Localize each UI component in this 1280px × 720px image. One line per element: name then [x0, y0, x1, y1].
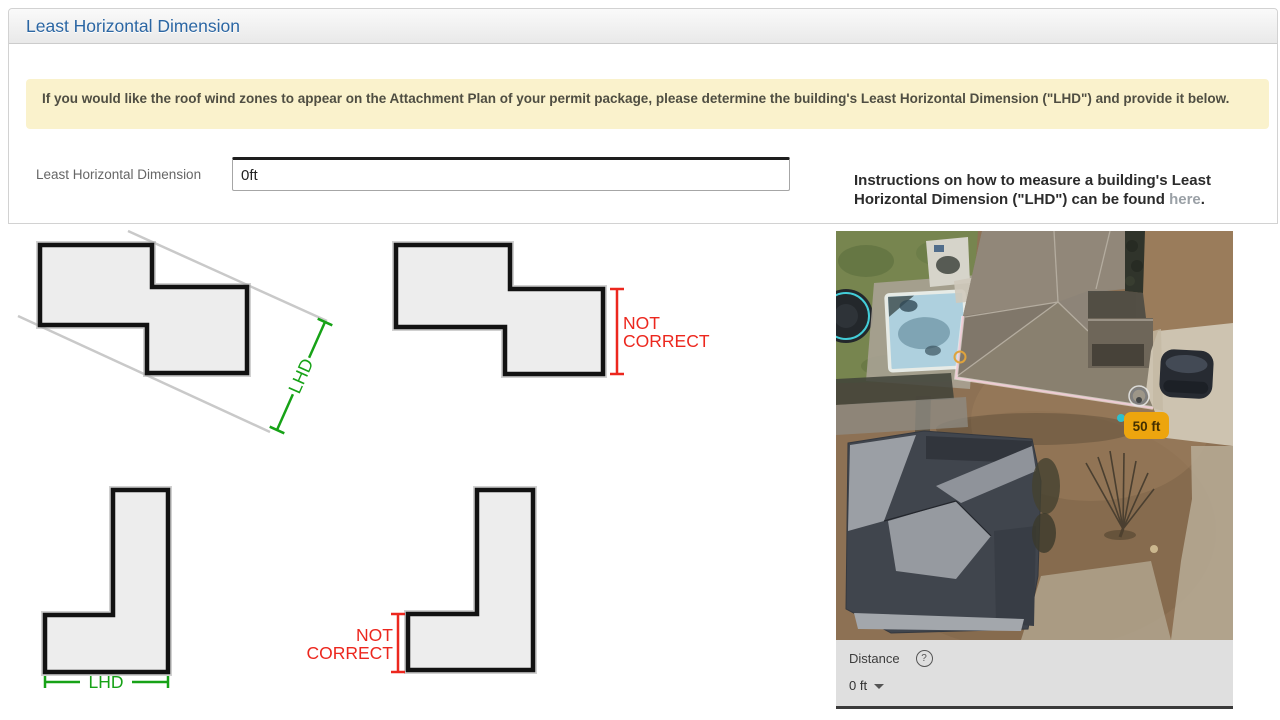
diagram-l-correct: LHD [20, 475, 220, 720]
map-control-panel: Distance ? 0 ft [836, 640, 1233, 706]
measurement-badge: 50 ft [1124, 412, 1169, 439]
chevron-down-icon [874, 684, 884, 689]
page-title: Least Horizontal Dimension [26, 16, 240, 37]
building-outline-l [408, 490, 533, 670]
instructions-here-link[interactable]: here [1169, 191, 1201, 208]
diagram-z-not-correct: NOT CORRECT [390, 228, 720, 443]
lhd-label: LHD [88, 672, 123, 692]
info-banner: If you would like the roof wind zones to… [26, 79, 1269, 129]
building-outline-z [396, 245, 603, 374]
help-icon[interactable]: ? [916, 650, 933, 667]
instructions-after: . [1201, 191, 1205, 208]
panel-header: Least Horizontal Dimension [9, 9, 1277, 44]
not-correct-label-line1: NOT [356, 625, 393, 645]
instructions-before: Instructions on how to measure a buildin… [854, 172, 1211, 208]
distance-dropdown[interactable]: 0 ft [849, 678, 919, 693]
second-house-roof [846, 431, 1060, 633]
building-outline-l [45, 490, 168, 672]
measure-drag-marker[interactable] [1129, 386, 1149, 406]
diagram-lhd-rotated-correct: LHD [0, 228, 340, 443]
teal-point [1117, 414, 1125, 422]
distance-label: Distance [849, 651, 900, 666]
screen: Least Horizontal Dimension If you would … [0, 0, 1280, 720]
lhd-form-row: Least Horizontal Dimension [36, 157, 790, 191]
car [1159, 349, 1214, 400]
lhd-label: LHD [285, 355, 318, 396]
measurement-label: 50 ft [1133, 419, 1161, 434]
not-correct-label-line1: NOT [623, 313, 660, 333]
instructions-text: Instructions on how to measure a buildin… [854, 171, 1256, 209]
not-correct-label-line2: CORRECT [623, 331, 710, 351]
lhd-input[interactable] [232, 157, 790, 191]
main-house-roof [956, 231, 1153, 408]
lhd-field-label: Least Horizontal Dimension [36, 167, 232, 182]
aerial-photo[interactable]: 50 ft [836, 231, 1233, 640]
distance-value: 0 ft [849, 678, 867, 693]
diagram-l-not-correct: NOT CORRECT [290, 475, 550, 720]
lhd-panel: Least Horizontal Dimension If you would … [8, 8, 1278, 224]
not-correct-label-line2: CORRECT [306, 643, 393, 663]
incorrect-dimension-line [610, 289, 624, 374]
trees-shadow [1125, 231, 1145, 293]
incorrect-dimension-line [391, 614, 405, 672]
map-widget: 50 ft Distance ? 0 ft [836, 231, 1233, 709]
